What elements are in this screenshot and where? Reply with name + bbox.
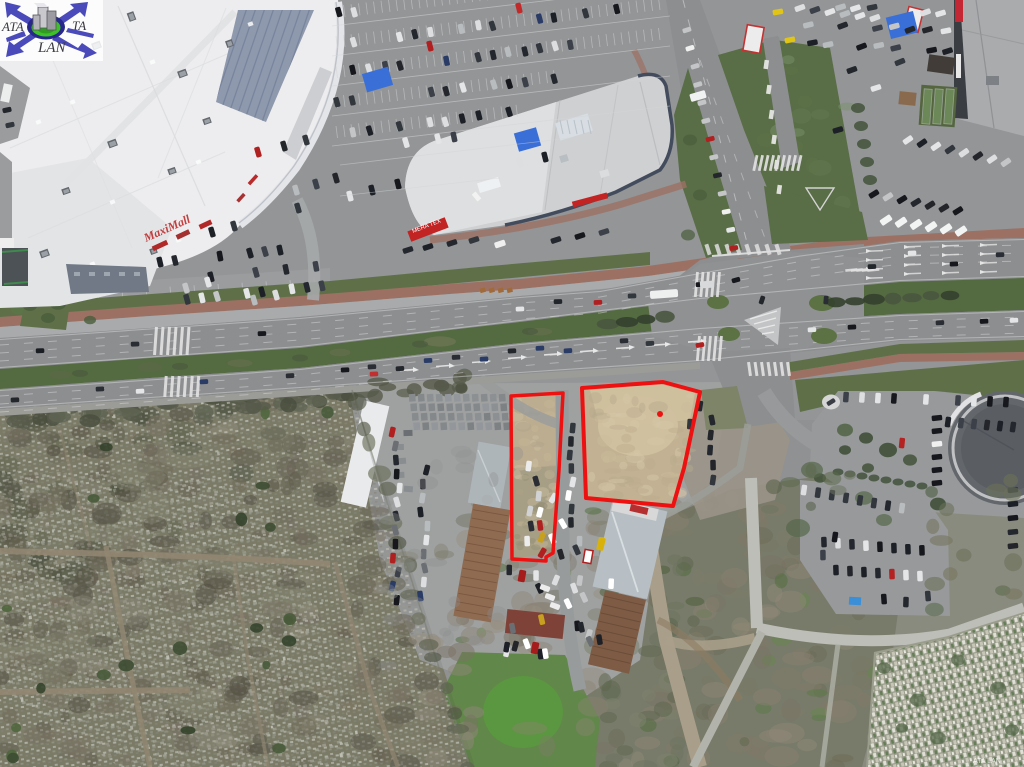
svg-text:ATA LAN: ATA LAN	[973, 758, 1001, 765]
svg-text:TA: TA	[72, 18, 86, 33]
svg-text:LAN: LAN	[37, 40, 67, 56]
svg-text:ATA: ATA	[1, 19, 24, 34]
